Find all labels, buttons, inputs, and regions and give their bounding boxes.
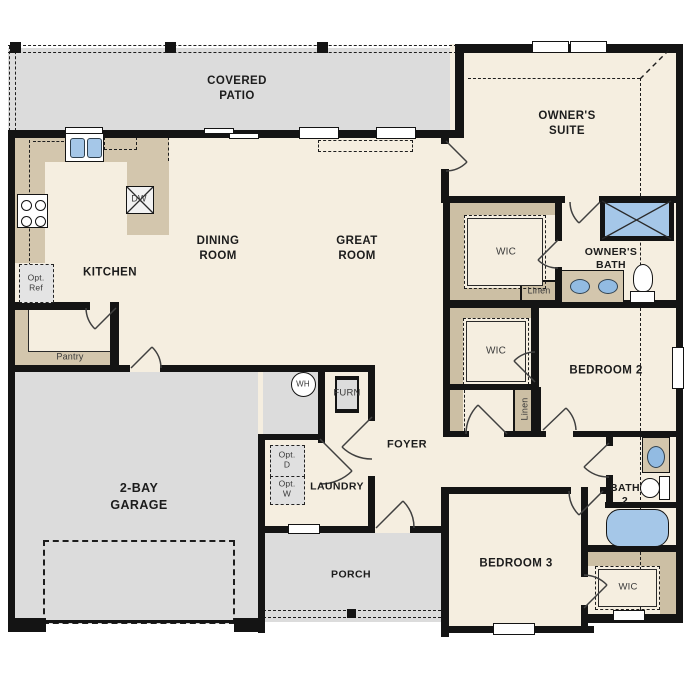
patio-edge-dashed (9, 46, 10, 131)
vanity-sink (647, 446, 665, 468)
window (376, 127, 416, 139)
stove-burner (35, 200, 46, 211)
wall (555, 196, 562, 241)
stove-burner (35, 216, 46, 227)
porch-post (347, 609, 356, 618)
window (299, 127, 339, 139)
laundry-label: LAUNDRY (310, 481, 364, 494)
wall (581, 487, 588, 577)
stove-burner (21, 200, 32, 211)
floor-plan: COVEREDPATIO OWNER'SSUITE KITCHEN DINING… (0, 0, 687, 687)
kitchen-cabinet-dashed (33, 141, 64, 142)
wall (263, 434, 322, 440)
great-room-label: GREATROOM (336, 234, 377, 264)
wall (443, 487, 571, 494)
bedroom-2-label: BEDROOM 2 (569, 364, 642, 379)
opt-dryer-label: Opt. D (279, 451, 296, 470)
wall (318, 365, 325, 443)
window (493, 623, 535, 635)
bedroom-3-label: BEDROOM 3 (479, 557, 552, 572)
wall (455, 44, 464, 138)
sink-basin (87, 138, 102, 158)
furnace-label: FURN (333, 388, 360, 399)
sink-basin (70, 138, 85, 158)
opt-refrigerator-label: Opt. Ref (28, 274, 45, 293)
bedroom3-wic-shelf-right (660, 560, 677, 617)
dining-room-label: DININGROOM (197, 234, 240, 264)
window (532, 41, 569, 53)
wall (581, 605, 588, 633)
bathtub (606, 509, 669, 547)
garage-door-dashed (43, 540, 235, 624)
wall (8, 130, 15, 632)
owners-linen-label: Linen (527, 286, 550, 297)
opt-washer-label: Opt. W (279, 480, 296, 499)
patio-post (165, 42, 176, 53)
wall (504, 431, 546, 437)
wall (110, 302, 119, 368)
ceiling-break-line (468, 78, 640, 79)
vanity-sink (598, 279, 618, 294)
vanity-sink (570, 279, 590, 294)
kitchen-cabinet-dashed (104, 137, 137, 150)
exterior-mask (443, 633, 588, 687)
hall-wic-label: WIC (486, 346, 506, 357)
stove-burner (21, 216, 32, 227)
covered-patio-label: COVEREDPATIO (207, 74, 267, 104)
window (613, 610, 645, 621)
owners-suite-label: OWNER'SSUITE (538, 109, 595, 139)
wall (410, 526, 443, 533)
toilet (640, 478, 660, 498)
wall (443, 196, 450, 437)
bedroom3-wic-label: WIC (618, 582, 637, 593)
wall (445, 384, 538, 390)
kitchen-counter-end-dashed (168, 137, 169, 161)
kitchen-label: KITCHEN (83, 266, 137, 281)
toilet-tank (630, 291, 655, 303)
owners-bath-label: OWNER'SBATH (585, 246, 638, 272)
hall-wic-shelf-left (450, 306, 463, 431)
patio-edge-dashed (15, 46, 16, 131)
toilet-tank (659, 476, 670, 500)
wall (317, 526, 375, 533)
garage-label: 2-BAYGARAGE (110, 480, 167, 514)
wall (443, 196, 565, 203)
dishwasher-label: DW (131, 194, 146, 205)
window (672, 347, 684, 389)
patio-edge-dashed (8, 52, 462, 53)
owners-wic-shelf-top (450, 203, 558, 215)
ceiling-break-line (640, 78, 641, 196)
foyer-label: FOYER (387, 439, 427, 452)
wall (258, 434, 265, 633)
sliding-door-panel (229, 133, 259, 139)
hall-linen-label: Linen (520, 397, 531, 420)
wall (14, 302, 90, 310)
wall (441, 487, 449, 637)
window (570, 41, 607, 53)
garage-door-threshold (44, 620, 236, 623)
pantry-interior (28, 309, 112, 352)
wall (676, 44, 683, 623)
patio-post (10, 42, 21, 53)
wall (531, 308, 539, 431)
window (288, 524, 320, 534)
wall (368, 476, 375, 533)
hall-closet-dashed (464, 390, 465, 431)
exterior-mask (588, 623, 687, 687)
wall (606, 437, 613, 446)
wall (160, 365, 375, 372)
water-heater-label: WH (296, 379, 310, 390)
dining-soffit-dashed (318, 140, 413, 152)
patio-edge-dashed (8, 45, 462, 46)
shower-pan (605, 203, 669, 236)
owners-wic-label: WIC (496, 247, 516, 258)
bath-2-label: BATH2 (610, 482, 640, 508)
pantry-label: Pantry (56, 352, 83, 363)
wall (441, 130, 449, 144)
patio-post (317, 42, 328, 53)
wall (368, 365, 375, 421)
porch-label: PORCH (331, 569, 371, 582)
